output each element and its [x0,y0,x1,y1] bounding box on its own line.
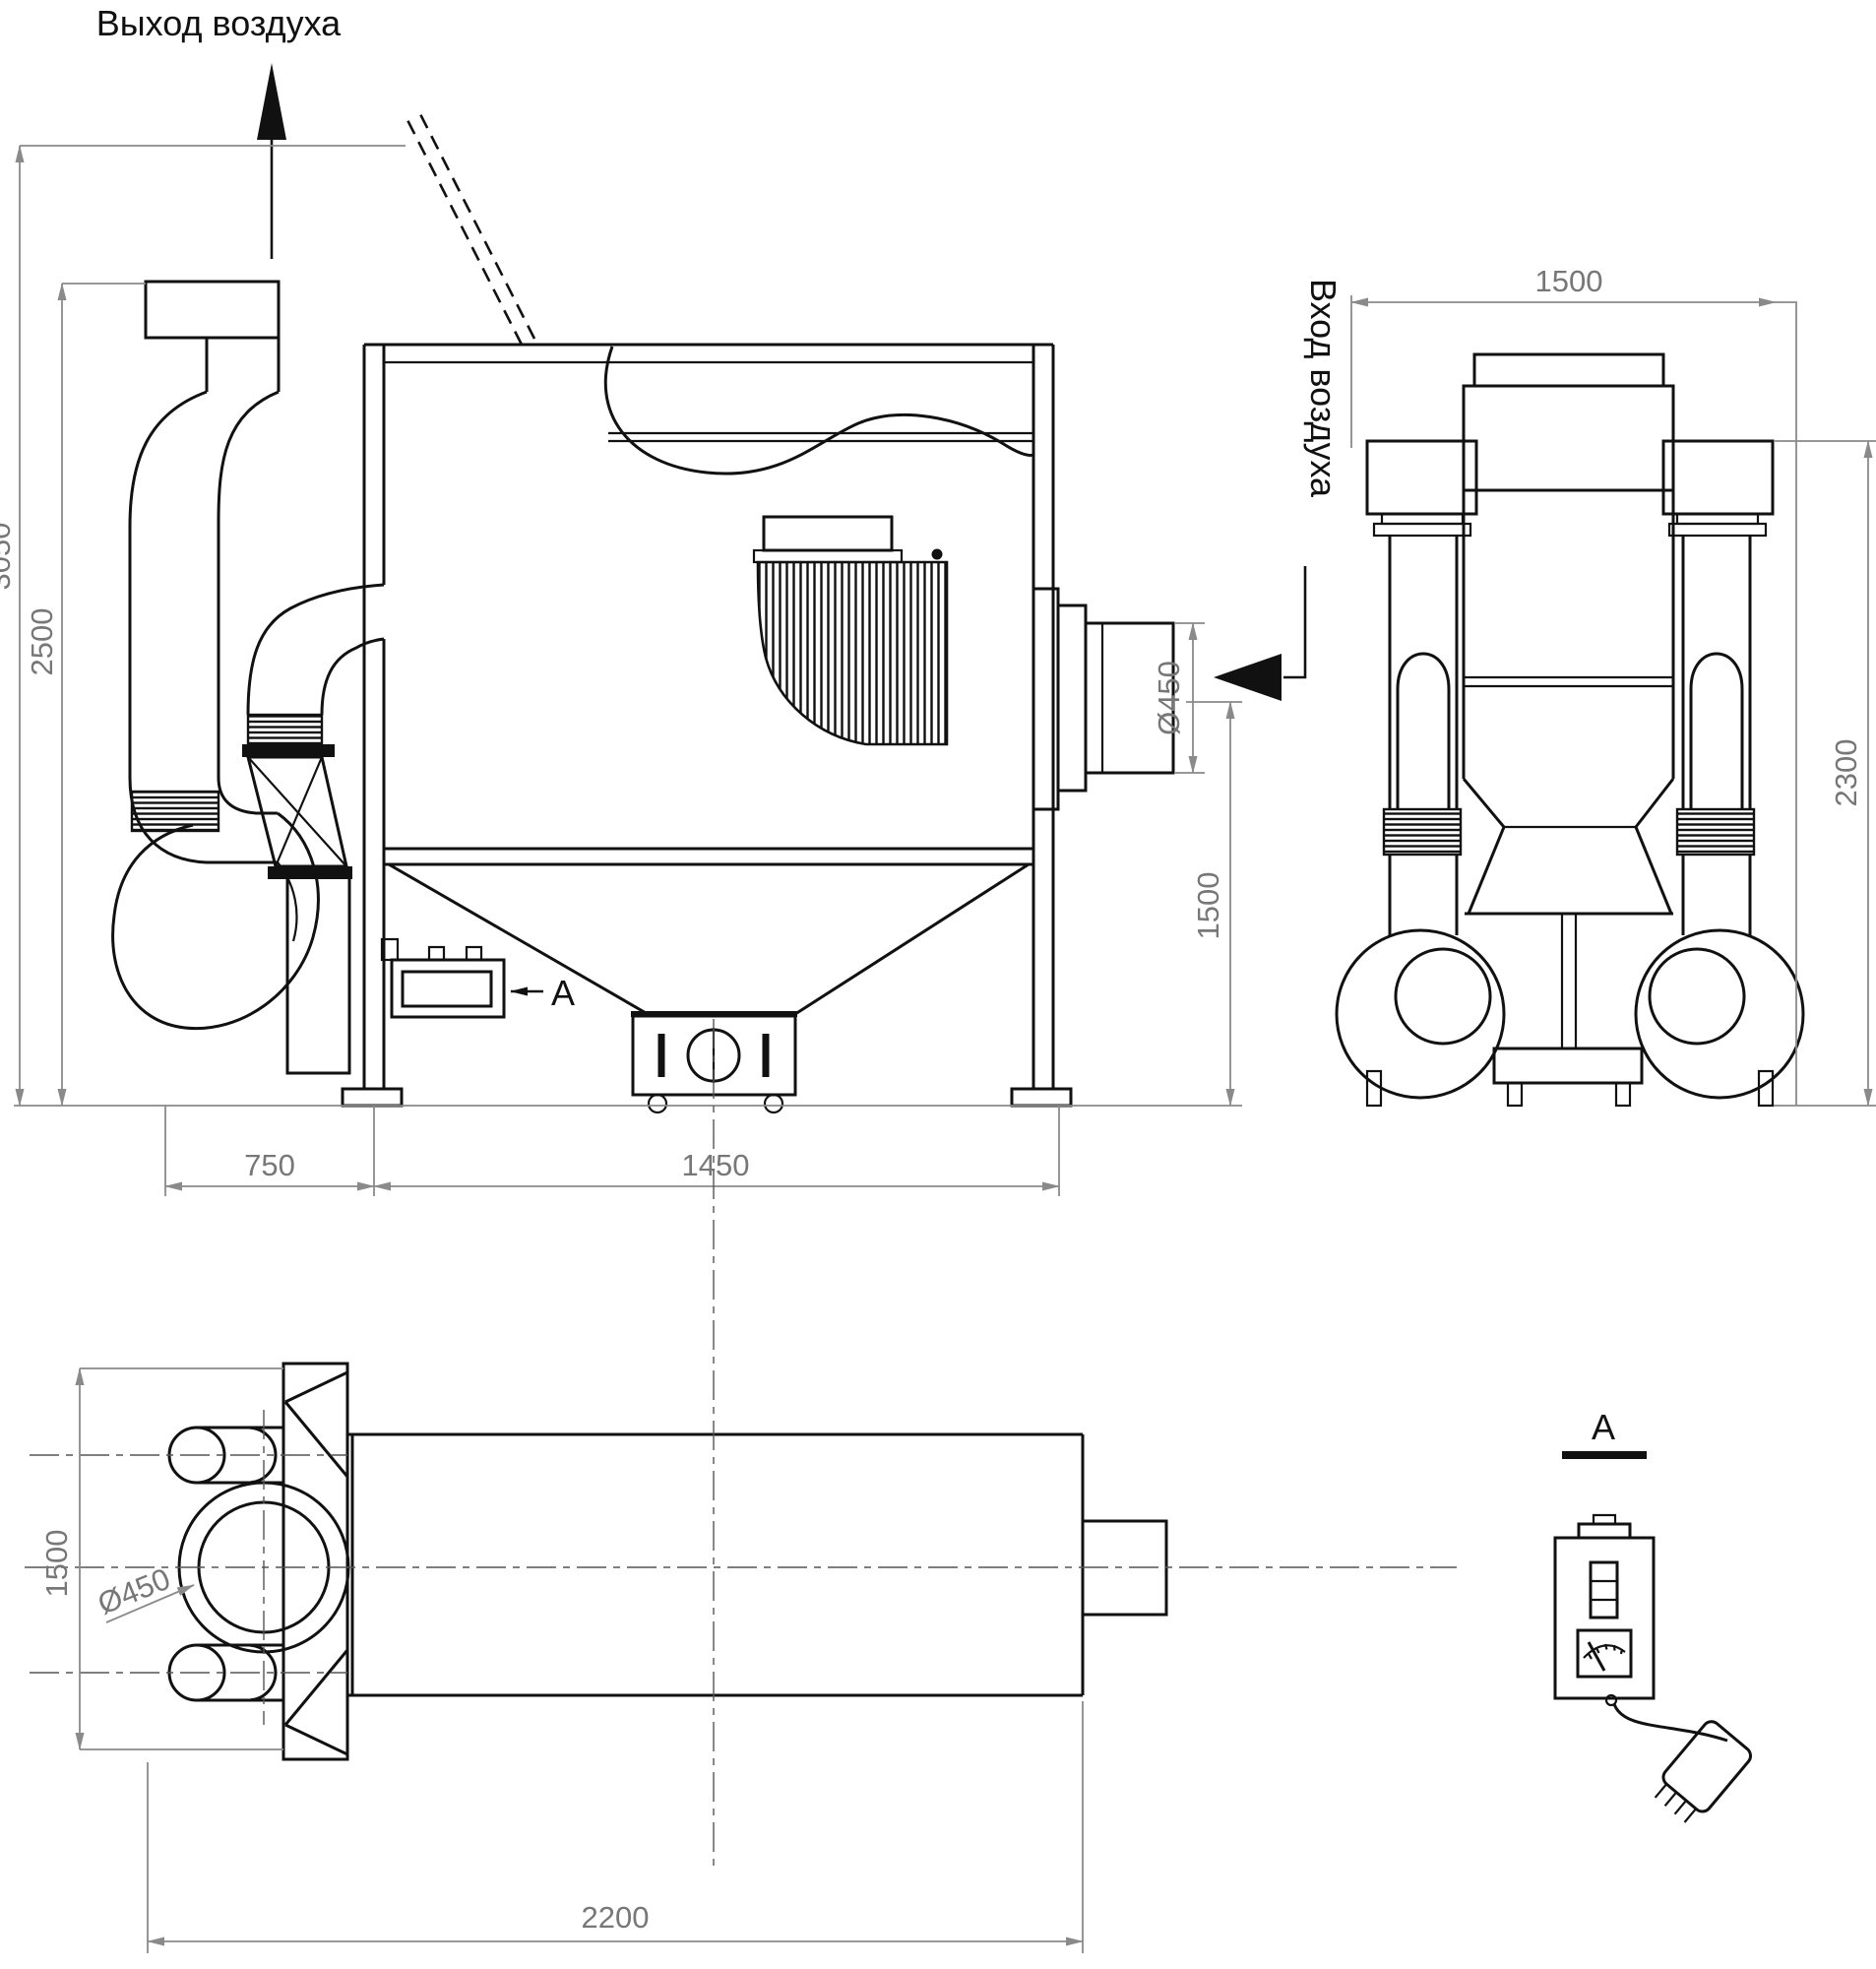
hopper [389,864,1029,1112]
dim-2500: 2500 [25,608,59,676]
right-foot [1012,1089,1071,1106]
filter-cartridge-cutaway [605,347,1033,744]
outlet-stack [146,282,279,392]
pressure-gauge-box [1555,1515,1754,1828]
left-foot [343,1089,402,1106]
dim-front-width: 1500 [1535,264,1603,298]
fan-inlet-duct [242,585,384,879]
top-body [283,1364,1166,1759]
flex-connector-2 [248,715,322,744]
air-outlet-label: Выход воздуха [96,3,342,43]
air-inlet-arrow-icon [1214,566,1305,701]
dim-top-length: 2200 [582,1900,650,1935]
detail-a-view: A [1555,1407,1754,1828]
switch-column [1591,1562,1617,1618]
dim-top-diameter: Ø450 [93,1561,174,1621]
side-ducts [1367,441,1773,935]
centerlines [25,1019,1457,1871]
open-lid-dashed [406,110,534,345]
flex-connector-right [1677,809,1754,855]
top-dimensions: 1500 Ø450 2200 [39,1368,1083,1953]
flex-connector-left [1384,809,1461,855]
dim-3050: 3050 [0,523,17,591]
flex-connector-1 [132,792,219,831]
dim-top-depth: 1500 [39,1530,74,1598]
fan-scroll [113,813,349,1073]
filter-tower [1464,354,1673,1106]
front-dimensions: 1500 2300 [1351,264,1876,1106]
section-a-marker: A [551,973,575,1013]
top-fan-ducts [169,1428,348,1700]
control-box: A [382,939,575,1017]
side-dimensions: 3050 2500 Ø450 1500 750 1450 [0,146,1242,1196]
wheel [765,1095,782,1112]
fan-scrolls [1337,930,1803,1106]
dim-front-height: 2300 [1829,739,1863,807]
main-housing [343,345,1071,1106]
dim-inlet-diameter: Ø450 [1152,661,1186,735]
stand [1494,1048,1642,1083]
dim-inlet-height: 1500 [1191,872,1225,940]
front-view: 1500 2300 [1337,264,1876,1106]
dim-1450: 1450 [682,1148,750,1182]
detail-a-title: A [1592,1407,1615,1447]
drawing-canvas: Выход воздуха [0,0,1876,1969]
side-view: Выход воздуха [0,3,1344,1196]
air-outlet-arrow-icon [257,63,286,259]
filter-pleats [758,562,947,744]
detail-a-underline [1562,1451,1647,1459]
dim-750: 750 [244,1148,295,1182]
wheel [649,1095,666,1112]
air-inlet-label: Вход воздуха [1303,279,1344,498]
